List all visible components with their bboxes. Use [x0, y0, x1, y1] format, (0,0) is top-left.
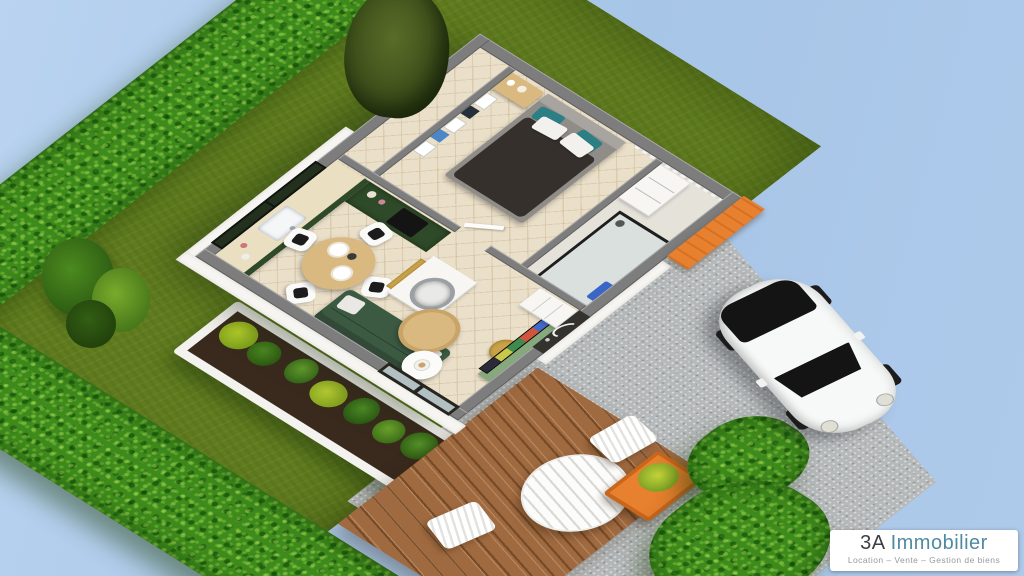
chair-cushion: [290, 233, 310, 247]
bench-deco: [515, 84, 528, 93]
logo-brand-name: Immobilier: [891, 532, 988, 554]
table-deco: [345, 252, 358, 261]
chair-cushion: [366, 227, 386, 241]
shower-head: [613, 219, 626, 228]
counter-deco: [377, 199, 387, 206]
logo-brand-prefix: 3A: [860, 532, 884, 554]
car-windshield: [772, 341, 871, 402]
bench-deco: [505, 79, 517, 87]
logo-brand: 3A Immobilier: [830, 532, 1018, 554]
lamp-pole: [417, 362, 427, 369]
planter-plant: [630, 457, 687, 497]
scene-canvas: 3A Immobilier Location – Vente – Gestion…: [0, 0, 1024, 576]
wardrobe-seam: [532, 297, 551, 312]
deck-chair: [425, 500, 498, 550]
counter-deco: [239, 242, 249, 249]
car-headlight: [873, 391, 897, 409]
chair-cushion: [368, 281, 385, 293]
counter-deco: [365, 190, 378, 199]
dresser-drawer-line: [635, 187, 661, 204]
wardrobe-seam: [544, 304, 563, 319]
garden-bush: [66, 300, 116, 348]
window-frame-line: [265, 201, 274, 207]
dresser-drawer-line: [648, 177, 674, 194]
counter-deco: [240, 252, 252, 260]
logo-tagline: Location – Vente – Gestion de biens: [830, 555, 1018, 565]
car-mirror: [853, 331, 866, 341]
door-handle: [544, 337, 551, 342]
chair-cushion: [293, 287, 309, 299]
table-plate: [329, 264, 354, 282]
logo-card: 3A Immobilier Location – Vente – Gestion…: [830, 530, 1018, 571]
